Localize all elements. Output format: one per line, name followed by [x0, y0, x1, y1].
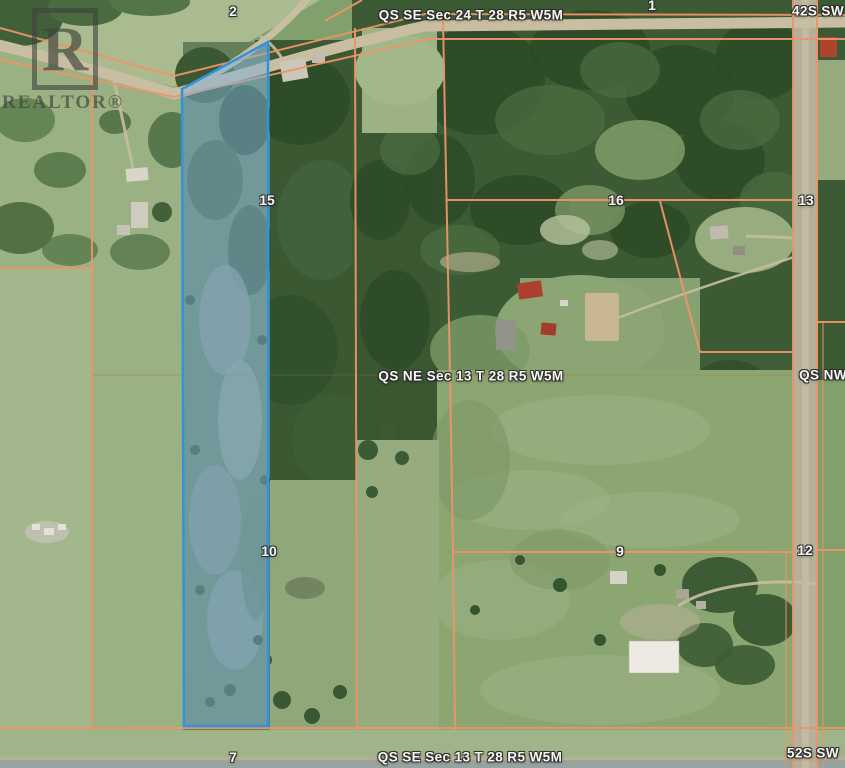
aerial-parcel-map[interactable]: 2 1 QS SE Sec 24 T 28 R5 W5M 42S SW 15 1… — [0, 0, 845, 768]
parcel-highlight-layer — [0, 0, 845, 768]
highlighted-parcel[interactable] — [182, 42, 268, 726]
